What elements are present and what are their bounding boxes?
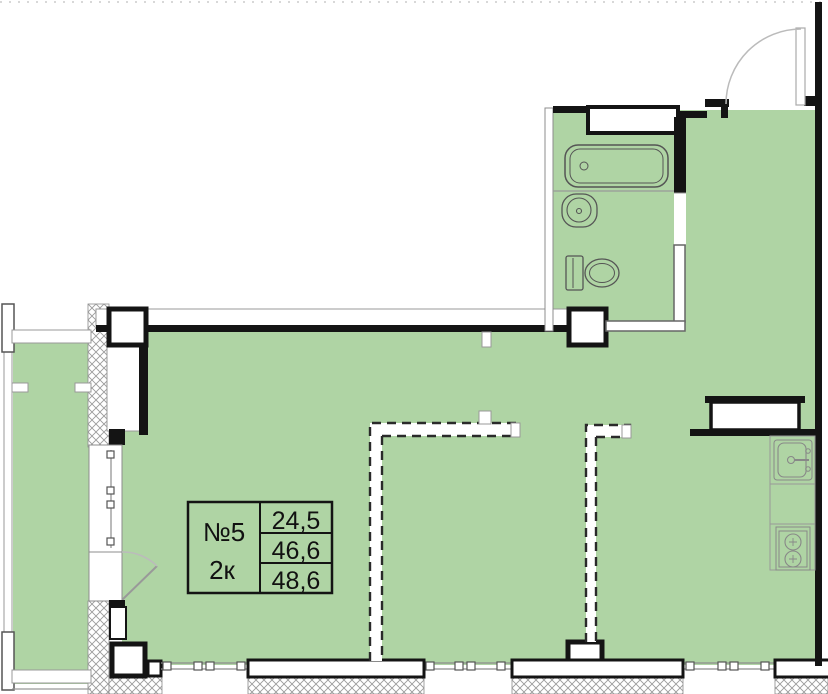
window-handle <box>761 662 769 670</box>
glazing-mullion-right <box>75 383 91 392</box>
pillar-bottom-left <box>112 644 145 676</box>
window-handle <box>206 662 214 670</box>
kitchen-niche-box <box>711 402 799 430</box>
left-wall <box>107 345 148 445</box>
balcony-top-band <box>12 330 91 343</box>
bottom-windows <box>161 660 828 677</box>
bathroom-east-wall-lower <box>674 245 685 322</box>
bathroom-door-opening <box>674 193 686 245</box>
unit-number: №5 <box>203 517 245 547</box>
bathroom-east-wall-upper <box>674 117 686 193</box>
glazing-post-top <box>2 304 14 352</box>
window-handle <box>107 501 114 508</box>
bathroom-south-wall <box>606 321 685 331</box>
wall-stub-tab <box>482 332 491 347</box>
floor-plan-canvas: №5 2к 24,5 46,6 48,6 <box>0 0 828 694</box>
area-value-3: 48,6 <box>272 567 321 595</box>
area-value-1: 24,5 <box>272 507 321 535</box>
window-handle <box>107 538 114 545</box>
wall-stub-bottom-left <box>148 661 161 676</box>
window-handle <box>194 662 202 670</box>
window-handle <box>467 662 475 670</box>
window-left <box>89 445 122 552</box>
pillar-top-mid <box>569 309 606 345</box>
window-handle <box>497 662 505 670</box>
floor-plan: №5 2к 24,5 46,6 48,6 <box>0 0 828 694</box>
window-handle <box>107 487 114 494</box>
window-sill-2 <box>512 660 683 677</box>
duct-box <box>110 607 126 639</box>
window-handle <box>107 451 114 458</box>
window-handle <box>426 662 434 670</box>
bathroom-west-wall <box>545 108 553 331</box>
entrance <box>676 28 805 118</box>
window-handle <box>730 662 738 670</box>
window-handle <box>237 662 245 670</box>
window-sill-1 <box>248 660 424 677</box>
window-handle <box>686 662 694 670</box>
area-value-2: 46,6 <box>272 537 321 565</box>
entrance-door-swing-arc <box>726 29 801 104</box>
balcony-bottom-band <box>12 670 91 683</box>
pillar-top-left <box>109 309 146 345</box>
window-handle <box>455 662 463 670</box>
unit-type: 2к <box>209 555 235 585</box>
partition-jamb <box>622 425 631 438</box>
window-handle <box>163 662 171 670</box>
living-room-floor <box>122 324 819 665</box>
vent-shaft <box>588 107 678 133</box>
entrance-door-leaf <box>796 28 805 105</box>
window-handle <box>718 662 726 670</box>
partition-jamb <box>511 423 520 437</box>
unit-label-box: №5 2к 24,5 46,6 48,6 <box>188 502 332 595</box>
partition-stub-tab <box>479 411 491 424</box>
glazing-mullion-left <box>12 383 28 392</box>
